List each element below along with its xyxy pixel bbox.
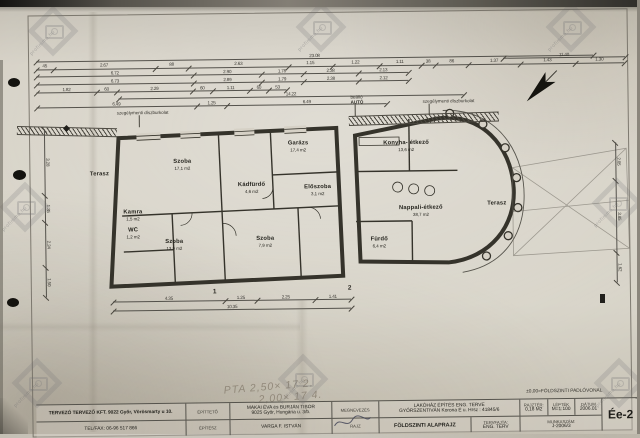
dimension-value: 11.40 xyxy=(503,51,625,57)
band-label-left: szegélymenti díszburkolat xyxy=(117,110,169,116)
dimension-value: 1.22 xyxy=(332,59,378,65)
room-label: Garázs17,4 m2 xyxy=(288,140,309,152)
ink-speck-2 xyxy=(600,294,605,303)
dimension-value: 2.05 xyxy=(617,142,622,180)
room-label: Kádfürdő4,6 m2 xyxy=(238,182,266,194)
dimension-value: 2.25 xyxy=(257,294,315,300)
dimension-value: 2.67 xyxy=(53,62,155,68)
room-label: Szoba7,9 m2 xyxy=(256,236,274,248)
date-value: 2006.01 xyxy=(575,407,601,412)
room-label: Nappali-étkező38,7 m2 xyxy=(399,205,443,217)
dimension-value: 6.49 xyxy=(37,100,197,107)
room-label: Szoba17,1 m2 xyxy=(173,159,191,171)
architect-label: ÉPÍTÉSZ xyxy=(186,425,230,431)
dimension-value: 2.12 xyxy=(359,74,409,80)
scan-edge-left xyxy=(0,60,3,434)
area-value: 0,18 M2 xyxy=(521,407,547,412)
room-label: Kamra1,5 m2 xyxy=(123,209,142,221)
title-block-designer-cell: TERVEZŐ TERVEZŐ KFT. 9022 Győr, Vörösmar… xyxy=(36,404,186,438)
title-block-role-values: MAKAI ÉVA és BURJÁN TIBOR 9025 Győr, Hun… xyxy=(230,402,332,435)
section-marker-2: 2 xyxy=(348,285,352,292)
project-name-line2: GYŐRSZENTIVÁN Korona É u. Hrsz : 41845/6 xyxy=(379,408,520,415)
room-label: WC1,2 m2 xyxy=(126,227,140,239)
plan-type-value: ENG. TERV xyxy=(472,424,520,430)
dimension-value: 86 xyxy=(435,58,468,63)
dimension-value: 4.35 xyxy=(113,295,225,301)
right-building-plan xyxy=(347,107,531,277)
dimension-value: 3.28 xyxy=(45,129,51,195)
dimension-value: 2.38 xyxy=(303,67,359,73)
dimension-value: 1.41 xyxy=(315,293,351,298)
area-box: RAJZTÉR: 0,18 M2 xyxy=(520,399,548,416)
worknum-value: J-2006/3 xyxy=(521,423,602,429)
project-name-label: MEGNEVEZÉS xyxy=(332,407,378,413)
dimension-value: 1.15 xyxy=(288,60,332,66)
dimension-value: 2.29 xyxy=(117,85,193,91)
dimension-value: 2.89 xyxy=(194,76,262,82)
dimension-value: 1.62 xyxy=(618,252,623,282)
dimension-value: 1.79 xyxy=(261,76,303,82)
left-building-plan xyxy=(96,113,359,303)
client-address: 9025 Győr, Hungária u. 3/b. xyxy=(230,410,331,416)
north-arrow xyxy=(518,63,565,110)
section-marker-1: 1 xyxy=(213,288,217,295)
dimension-value: 3.85 xyxy=(617,180,623,252)
dimension-value: 6.72 xyxy=(36,69,193,76)
scale-box: LÉPTÉK M=1:100 xyxy=(548,399,576,416)
scale-value: M=1:100 xyxy=(548,407,574,412)
scan-edge-top xyxy=(0,0,640,7)
punch-hole-3 xyxy=(7,298,19,307)
band-label-right: szegélymenti díszburkolat xyxy=(423,98,475,104)
dimension-value: 1.78 xyxy=(261,68,303,74)
scanned-sheet: beálló AUTÓ szegélymenti díszburkolat sz… xyxy=(0,0,640,438)
dimension-value: 2.13 xyxy=(358,66,408,72)
designer-phone: TEL/FAX: 06-96 517 866 xyxy=(37,426,186,433)
dimension-value: 1.82 xyxy=(36,86,96,92)
signature xyxy=(332,413,372,429)
datum-note: ±0,00=FÖLDSZINTI PADLÓVONAL xyxy=(526,389,602,395)
title-block-role-labels: ÉPÍTTETŐ ÉPÍTÉSZ xyxy=(186,403,231,436)
car-text: AUTÓ xyxy=(351,100,364,105)
plan-type-box: TERVFAJTA: ENG. TERV xyxy=(471,417,520,432)
worknum-box: MUNKASZÁM: J-2006/3 xyxy=(521,416,602,432)
architect-name: VARGA F. ISTVÁN xyxy=(231,424,332,430)
room-label: Konyha- étkező13,6 m2 xyxy=(383,140,429,152)
room-label: Terasz xyxy=(487,200,506,207)
client-label: ÉPÍTTETŐ xyxy=(186,409,230,415)
dimension-value: 1.11 xyxy=(379,59,421,65)
designer-name: TERVEZŐ TERVEZŐ KFT. 9022 Győr, Vörösmar… xyxy=(36,409,185,416)
dimension-value: 2.38 xyxy=(303,75,359,81)
dimension-value: 1.50 xyxy=(47,267,52,297)
carport-label: beálló AUTÓ xyxy=(351,94,364,105)
dimension-value: 88 xyxy=(155,62,189,67)
scan-edge-top-fade xyxy=(0,7,640,12)
room-label: Fürdő6,4 m2 xyxy=(371,236,389,248)
band-leader-left xyxy=(139,115,140,127)
dimension-value: 1.25 xyxy=(225,294,257,299)
date-box: DÁTUM 2006.01 xyxy=(575,399,602,416)
room-label: Szoba13,9 m2 xyxy=(165,239,183,251)
room-label: Terasz xyxy=(90,171,109,178)
dimension-value: 1.25 xyxy=(196,100,227,105)
dimension-value: 6.73 xyxy=(36,77,193,84)
sheet-code: Ée-2 xyxy=(603,398,639,430)
drawing-title: FÖLDSZINTI ALAPRAJZ xyxy=(379,422,471,429)
scan-corner-shadow xyxy=(0,398,28,434)
band-leader-right xyxy=(429,104,430,115)
dimension-value: 2.24 xyxy=(47,222,53,267)
punch-hole-2 xyxy=(13,170,26,180)
dimension-value: 1.11 xyxy=(212,84,249,89)
title-block-name-values: LAKÓHÁZ ÉPÍTÉS ENG. TERVE GYŐRSZENTIVÁN … xyxy=(379,400,521,434)
dimension-value: 2.63 xyxy=(188,60,288,66)
carport-leader xyxy=(355,105,356,117)
dimension-value: 2.90 xyxy=(193,68,261,74)
punch-hole-1 xyxy=(8,78,20,87)
room-label: Előszoba3,1 m2 xyxy=(304,184,331,196)
title-block-stats: RAJZTÉR: 0,18 M2 LÉPTÉK M=1:100 DÁTUM 20… xyxy=(520,399,603,432)
